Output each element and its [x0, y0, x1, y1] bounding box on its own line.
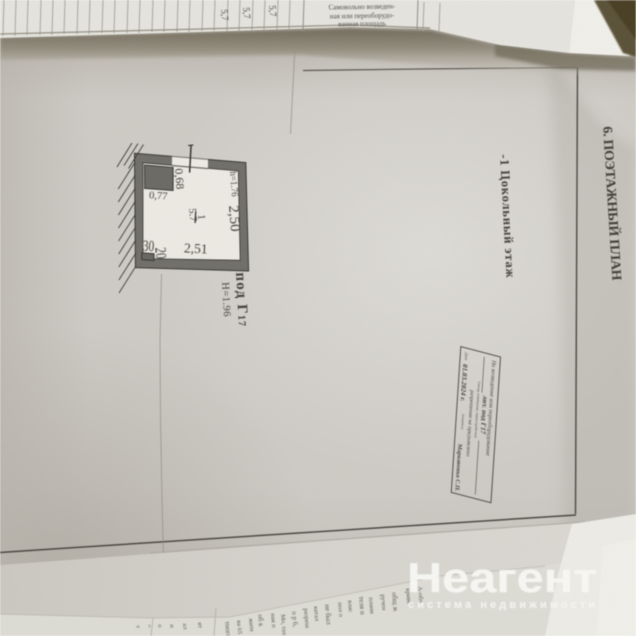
svg-text:(подпись): (подпись)	[460, 414, 465, 431]
svg-text:01.03.2024 г.: 01.03.2024 г.	[459, 363, 469, 403]
svg-text:Марковенко С.П.: Марковенко С.П.	[453, 443, 462, 492]
svg-text:Дата: Дата	[464, 352, 469, 361]
